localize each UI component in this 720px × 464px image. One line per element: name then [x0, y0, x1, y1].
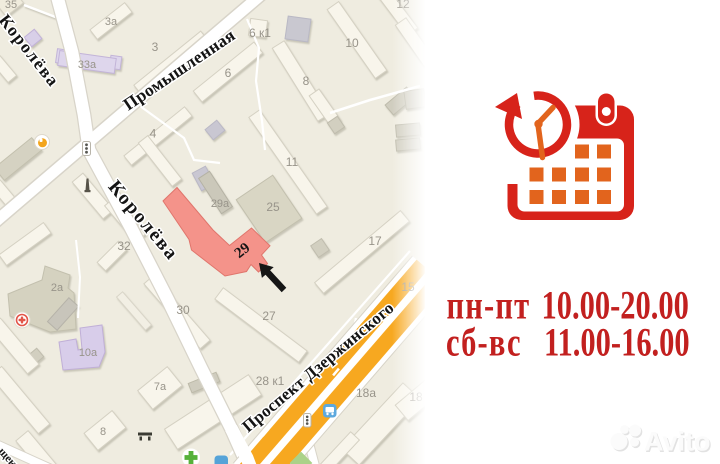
svg-text:4: 4: [150, 127, 157, 141]
svg-text:11: 11: [286, 155, 299, 169]
svg-text:10: 10: [345, 36, 359, 50]
svg-text:33а: 33а: [78, 59, 97, 71]
svg-text:18а: 18а: [356, 386, 376, 400]
svg-text:17: 17: [368, 234, 382, 248]
svg-text:2а: 2а: [51, 282, 64, 294]
svg-text:сб-вс: сб-вс: [446, 319, 522, 364]
svg-text:3а: 3а: [105, 16, 118, 28]
svg-text:6 к1: 6 к1: [249, 26, 271, 40]
svg-text:Avito: Avito: [644, 427, 711, 457]
svg-text:25: 25: [266, 200, 280, 214]
svg-text:29а: 29а: [211, 198, 230, 210]
svg-text:27: 27: [262, 309, 276, 323]
svg-text:8: 8: [100, 426, 106, 438]
svg-text:30: 30: [176, 303, 190, 317]
svg-text:8: 8: [303, 74, 310, 88]
svg-text:11.00-16.00: 11.00-16.00: [544, 319, 690, 364]
svg-text:10а: 10а: [79, 347, 98, 359]
svg-text:32: 32: [117, 239, 131, 253]
svg-text:3: 3: [152, 40, 159, 54]
svg-text:7а: 7а: [154, 381, 167, 393]
svg-text:6: 6: [225, 66, 232, 80]
